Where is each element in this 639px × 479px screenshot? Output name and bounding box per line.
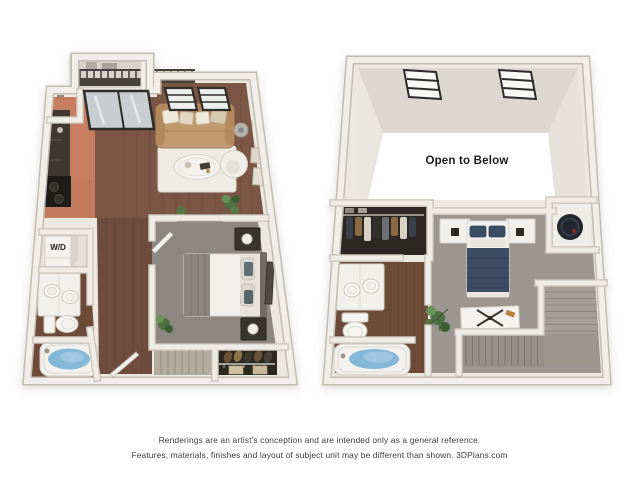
bath-faucet [45, 349, 50, 354]
second-floor-plan [327, 60, 607, 381]
floor-plan-rendering: W/D Open to Below Renderings are an arti… [0, 0, 639, 479]
ceiling-face [358, 68, 578, 133]
first-floor-stairs [154, 349, 212, 375]
loft-bed-duvet [467, 248, 509, 294]
loft-vanity [336, 264, 384, 310]
hallway-floor [97, 218, 152, 374]
utility-closet [553, 203, 591, 247]
loft-bathtub [334, 344, 410, 375]
open-to-below-label: Open to Below [397, 155, 537, 167]
floor-plans-artwork [0, 0, 639, 479]
loft-bathroom [333, 262, 428, 375]
bed [184, 252, 267, 318]
disclaimer-line-1: Renderings are an artist's conception an… [0, 433, 639, 448]
floor-lamp [234, 123, 248, 137]
shoe-closet [217, 349, 277, 375]
skylight-left [404, 70, 441, 99]
washer-dryer-unit [45, 236, 71, 268]
loft-bath-faucet [341, 354, 346, 359]
walk-in-closet [337, 207, 428, 255]
loft-toilet [342, 313, 368, 340]
disclaimer: Renderings are an artist's conception an… [0, 433, 639, 462]
balcony-sliding-door [84, 91, 154, 129]
first-floor-bedroom [152, 222, 276, 347]
coffee-table [174, 155, 220, 180]
nightstand-top [235, 228, 260, 250]
disclaimer-line-2: Features, materials, finishes and layout… [0, 448, 639, 463]
first-floor-plan [27, 55, 293, 381]
armchair [221, 151, 248, 178]
skylight-right [499, 70, 536, 99]
toilet [44, 316, 78, 334]
bathroom-vanity [38, 272, 80, 316]
loft-desk [461, 306, 520, 330]
nightstand-bottom [241, 318, 266, 340]
washer-dryer-label: W/D [45, 243, 71, 252]
hallway [97, 218, 152, 377]
